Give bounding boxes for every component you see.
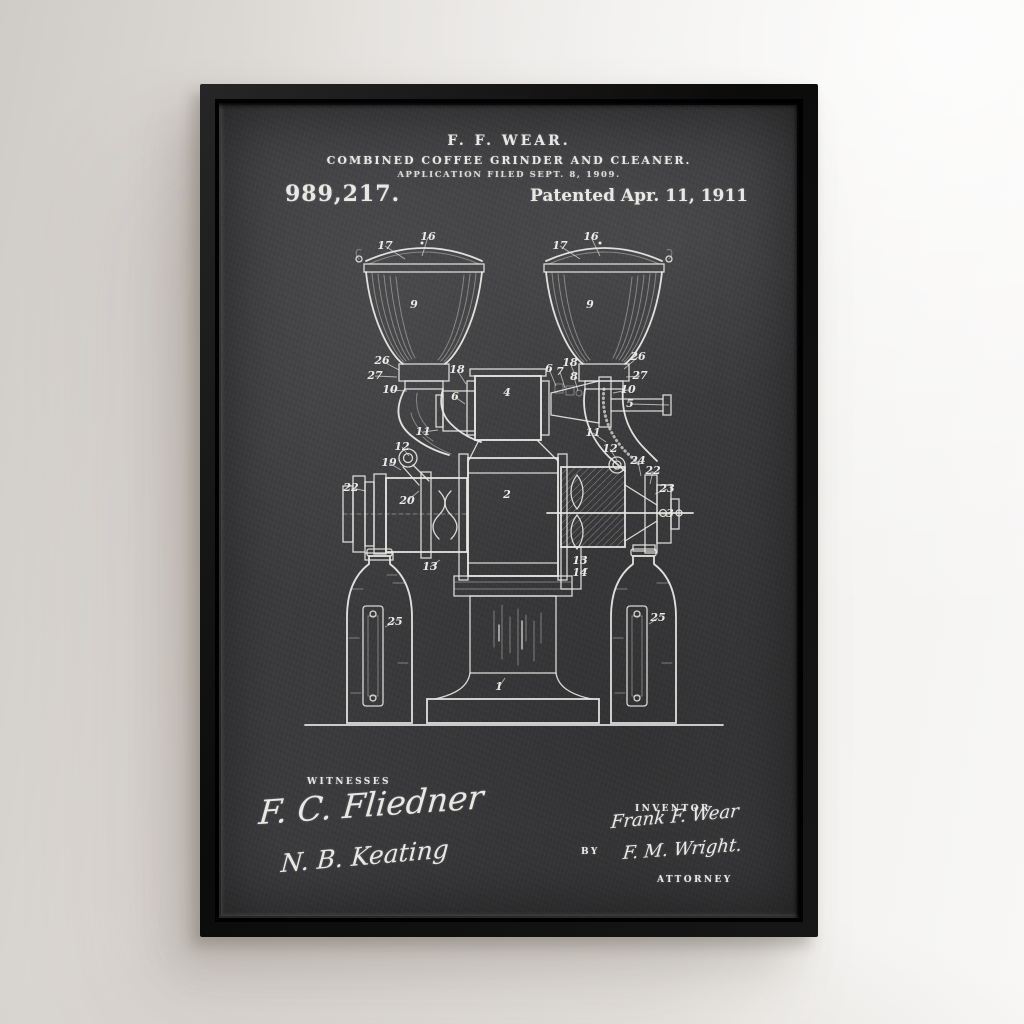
ref-label: 12: [394, 440, 410, 453]
ref-label: 26: [629, 350, 646, 363]
witness-signature-1: F. C. Fliedner: [257, 777, 485, 832]
left-cleaner-drum: [343, 472, 467, 560]
ref-label-layer: 1716926271017169262710518641867811111212…: [342, 230, 675, 693]
inventor-signature: Frank F. Wear: [610, 801, 740, 833]
ref-label: 16: [420, 230, 436, 243]
ref-label: 9: [410, 298, 418, 311]
jar-left: [347, 549, 412, 723]
patent-poster: F. F. WEAR. COMBINED COFFEE GRINDER AND …: [221, 105, 797, 916]
picture-frame: F. F. WEAR. COMBINED COFFEE GRINDER AND …: [200, 84, 818, 937]
attorney-signature: F. M. Wright.: [622, 835, 743, 865]
ref-label: 4: [503, 386, 511, 399]
ref-label: 25: [386, 615, 402, 628]
pedestal: [427, 576, 599, 723]
ref-label: 9: [586, 298, 594, 311]
patent-drawing: 1716926271017169262710518641867811111212…: [289, 223, 739, 733]
ref-label: 5: [626, 397, 634, 410]
witness-signature-2: N. B. Keating: [280, 834, 450, 878]
ref-label: 27: [366, 369, 383, 382]
ref-label: 22: [644, 464, 661, 477]
ref-label: 19: [381, 456, 397, 469]
ref-label: 3: [666, 507, 674, 520]
ref-label: 27: [631, 369, 648, 382]
ref-label: 25: [649, 611, 665, 624]
ref-label: 8: [570, 370, 578, 383]
right-adjusting-cone-and-shaft: [551, 377, 671, 427]
ref-label: 17: [377, 239, 393, 252]
ref-label: 11: [585, 426, 600, 439]
ref-label: 13: [422, 560, 438, 573]
patent-application-line: APPLICATION FILED SEPT. 8, 1909.: [221, 170, 797, 180]
wall: F. F. WEAR. COMBINED COFFEE GRINDER AND …: [0, 0, 1024, 1024]
ref-label: 24: [629, 454, 645, 467]
ref-label: 14: [572, 566, 587, 579]
ref-label: 18: [562, 356, 578, 369]
patent-title: COMBINED COFFEE GRINDER AND CLEANER.: [221, 154, 797, 167]
grinder-upper-block: [467, 369, 557, 460]
ref-label: 16: [583, 230, 599, 243]
ref-label: 26: [373, 354, 390, 367]
patent-date: Patented Apr. 11, 1911: [530, 186, 748, 206]
by-label: BY: [581, 847, 600, 857]
ref-label: 18: [449, 363, 465, 376]
grinder-main-cylinder: [459, 454, 567, 580]
jar-right: [611, 549, 676, 723]
ref-label: 23: [658, 482, 675, 495]
attorney-label: ATTORNEY: [657, 875, 733, 885]
ref-label: 1: [495, 680, 503, 693]
ref-label: 6: [545, 362, 553, 375]
ref-label: 17: [552, 239, 568, 252]
ref-label: 7: [556, 365, 564, 378]
ref-label: 10: [382, 383, 398, 396]
ref-label: 2: [502, 488, 511, 501]
patent-number: 989,217.: [285, 181, 400, 207]
patent-inventor-name: F. F. WEAR.: [221, 133, 797, 149]
ref-label: 20: [398, 494, 415, 507]
ref-label: 11: [415, 425, 430, 438]
ref-label: 22: [342, 481, 359, 494]
ref-label: 10: [620, 383, 636, 396]
ref-label: 6: [451, 390, 459, 403]
ref-label: 12: [602, 442, 618, 455]
